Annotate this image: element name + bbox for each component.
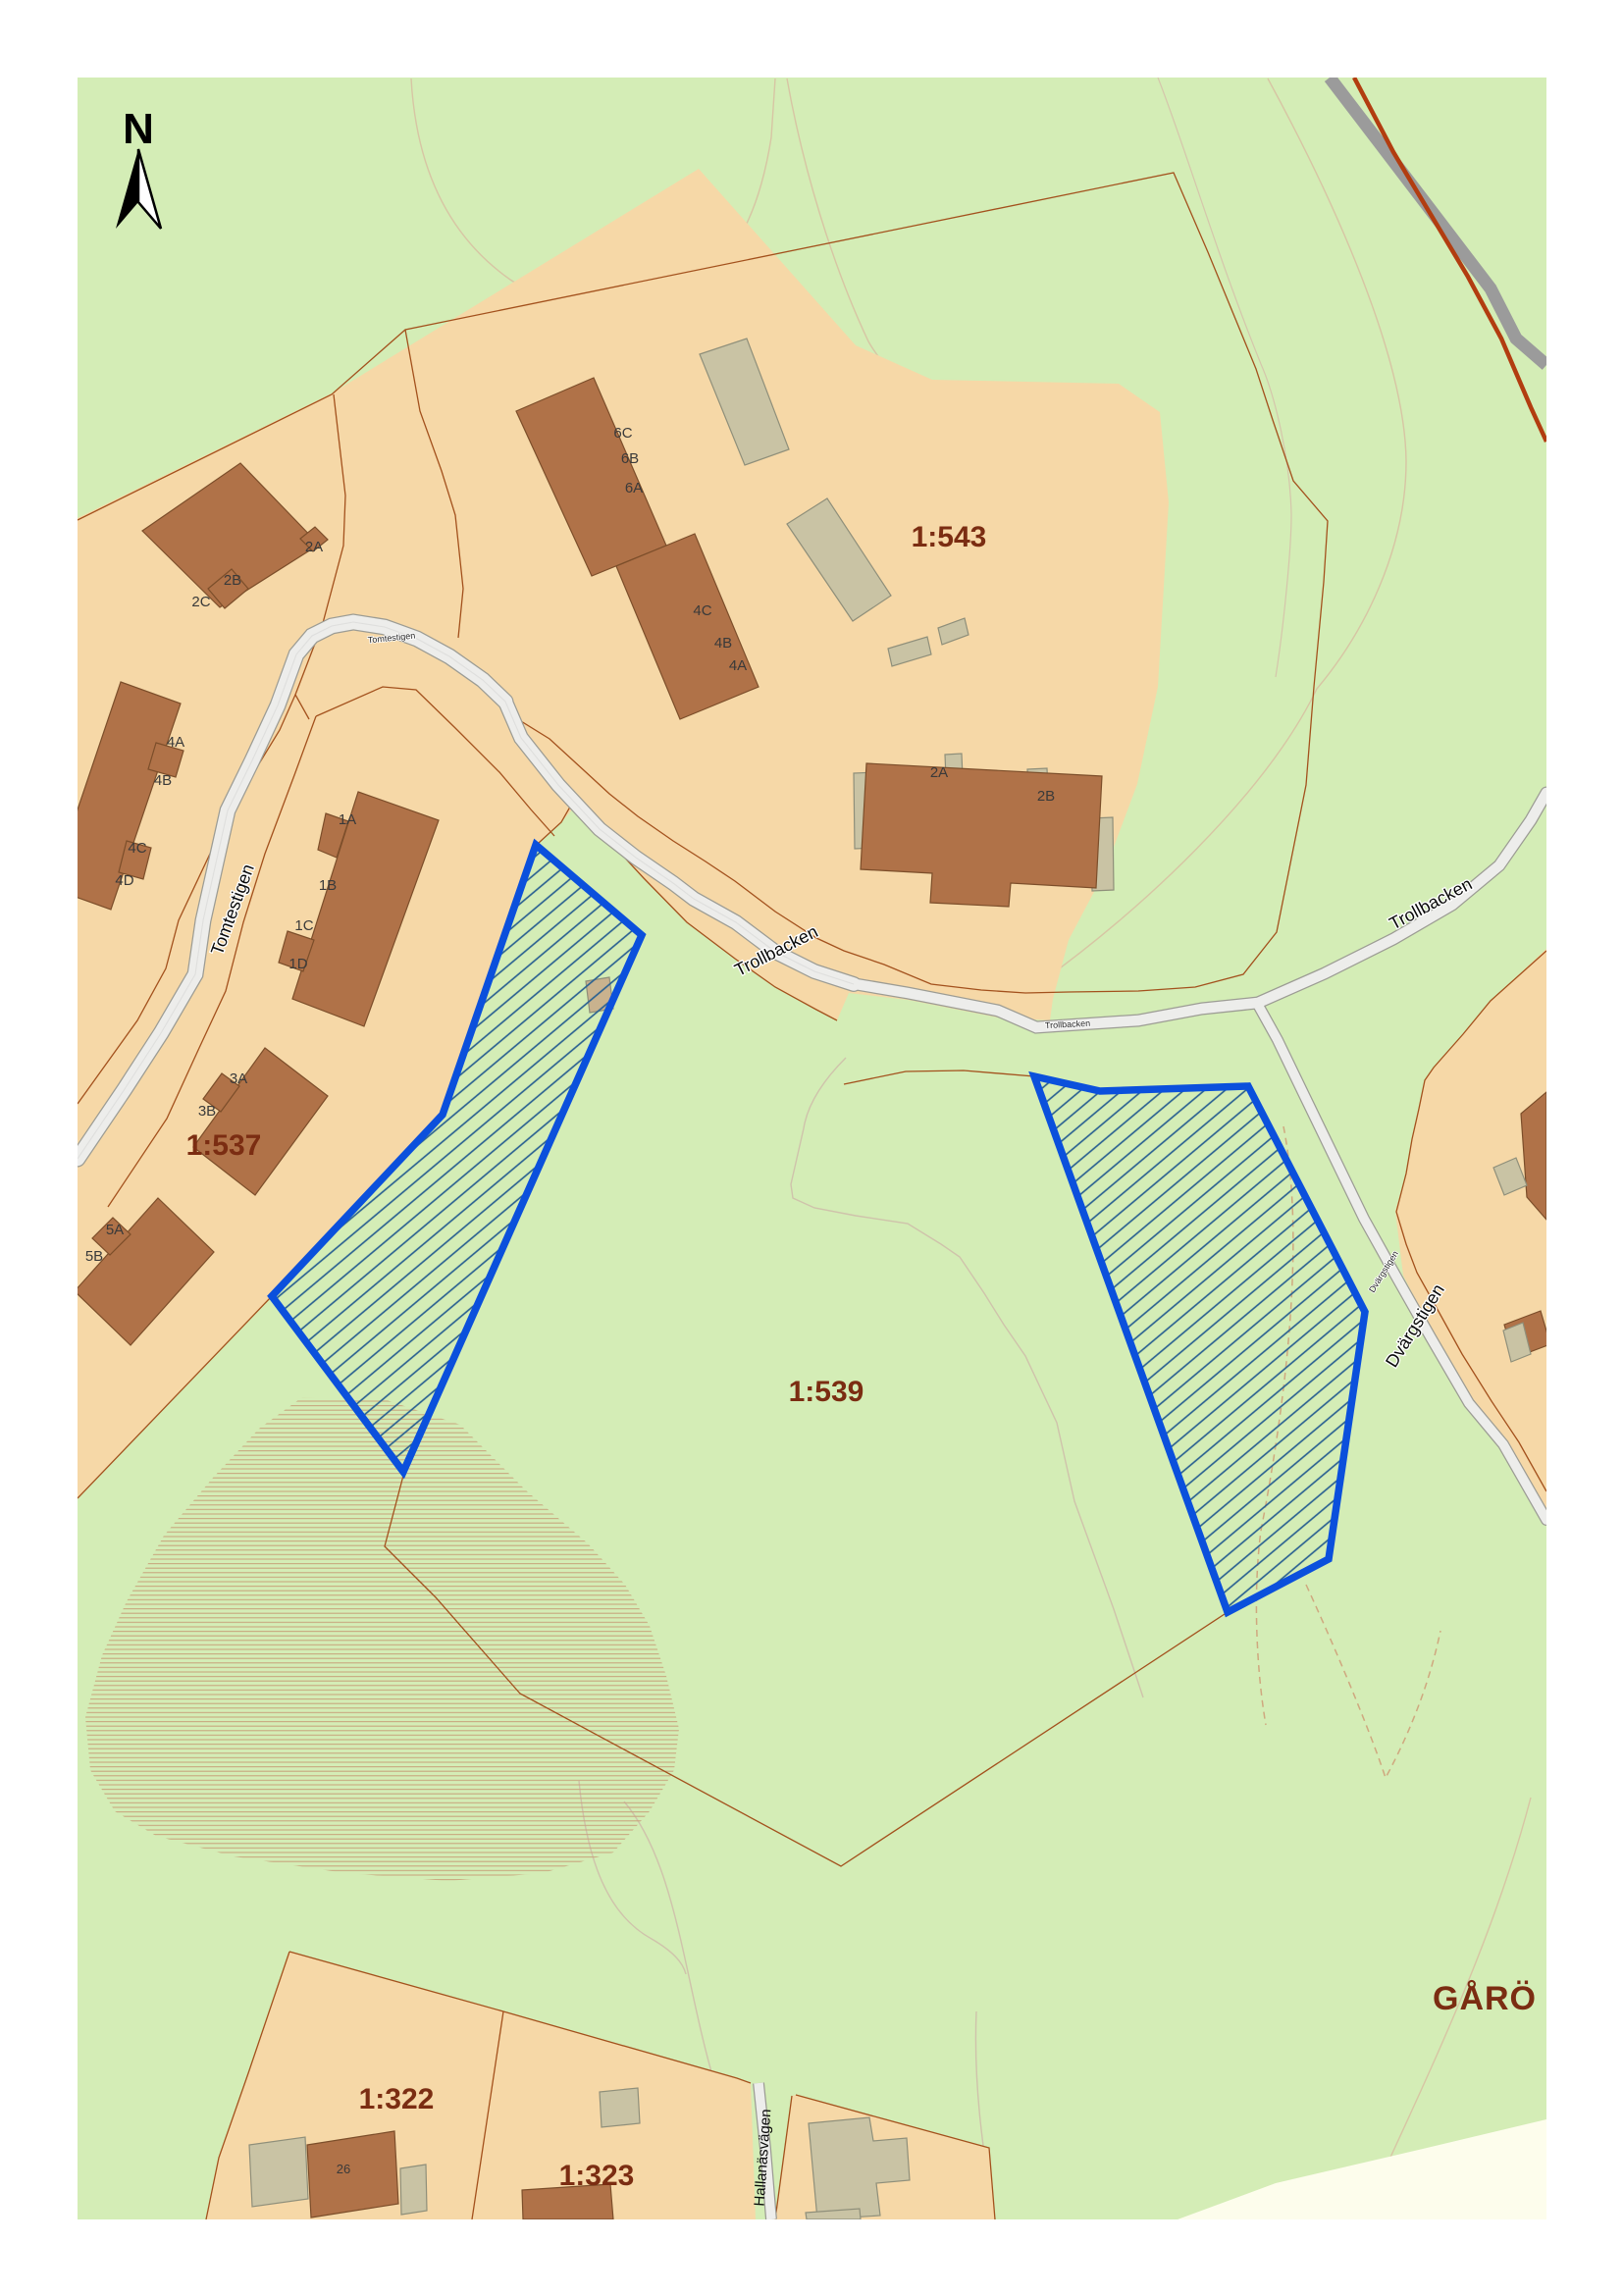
svg-text:26: 26 <box>337 2162 350 2176</box>
svg-text:2B: 2B <box>224 572 241 589</box>
svg-text:6B: 6B <box>621 450 639 467</box>
svg-text:4C: 4C <box>693 602 711 619</box>
svg-text:1:323: 1:323 <box>559 2160 635 2192</box>
svg-text:3B: 3B <box>198 1103 216 1120</box>
svg-text:1A: 1A <box>339 811 356 828</box>
svg-text:4A: 4A <box>729 657 747 674</box>
svg-text:N: N <box>123 105 154 153</box>
svg-text:4A: 4A <box>167 734 184 751</box>
svg-text:6A: 6A <box>625 480 643 496</box>
svg-text:2A: 2A <box>305 539 323 555</box>
svg-text:4C: 4C <box>128 840 146 857</box>
svg-text:1D: 1D <box>288 956 307 972</box>
svg-text:4B: 4B <box>154 772 172 789</box>
svg-text:4B: 4B <box>714 635 732 652</box>
svg-text:1:322: 1:322 <box>359 2083 435 2115</box>
svg-text:1:537: 1:537 <box>186 1129 262 1162</box>
svg-text:6C: 6C <box>613 425 632 442</box>
svg-text:1C: 1C <box>294 917 313 934</box>
svg-text:1:543: 1:543 <box>912 521 987 553</box>
svg-text:2A: 2A <box>930 764 948 781</box>
svg-text:5B: 5B <box>85 1248 103 1265</box>
svg-text:1B: 1B <box>319 877 337 894</box>
svg-text:2B: 2B <box>1037 788 1055 805</box>
svg-text:3A: 3A <box>230 1070 247 1087</box>
svg-text:5A: 5A <box>106 1222 124 1238</box>
svg-text:GÅRÖ: GÅRÖ <box>1433 1980 1537 2017</box>
svg-text:2C: 2C <box>191 594 210 610</box>
svg-text:4D: 4D <box>115 872 133 889</box>
svg-text:1:539: 1:539 <box>789 1376 864 1408</box>
